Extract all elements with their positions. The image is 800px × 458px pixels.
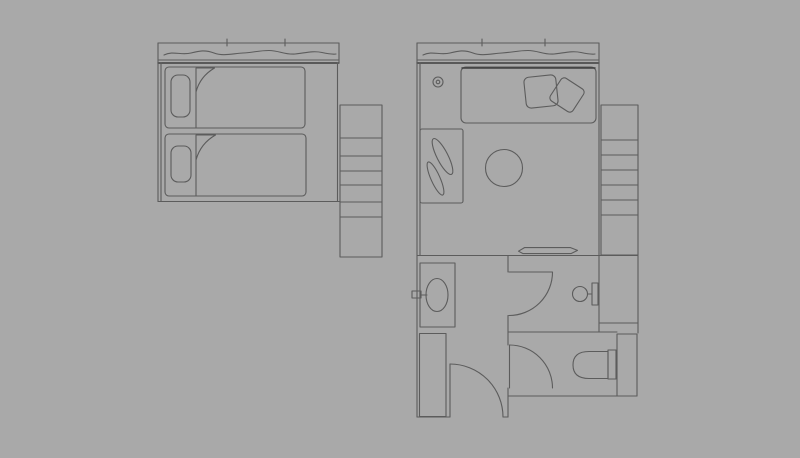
shower-door-arc	[509, 272, 553, 316]
bed-2-pillow	[171, 146, 191, 182]
bed-2-sheet-fold	[196, 135, 216, 160]
wc-door-arc	[510, 345, 553, 388]
floor-plan-canvas	[0, 0, 800, 458]
wall-lamp-inner	[436, 80, 440, 84]
wardrobe	[420, 334, 447, 417]
wall-lamp	[433, 77, 443, 87]
curtain-line	[423, 51, 595, 56]
luggage-tray	[519, 248, 578, 254]
corner-shaft	[617, 334, 637, 396]
bed-2	[165, 134, 306, 196]
bed-1-sheet-fold	[196, 68, 215, 92]
toilet-bowl	[573, 352, 608, 379]
curtain-line	[164, 51, 336, 56]
bed-pillow-2	[548, 76, 585, 113]
toilet-tank	[608, 350, 616, 379]
bed	[461, 67, 596, 123]
plant-leaf-2	[424, 160, 447, 197]
floor-plan-svg	[0, 0, 800, 458]
sink-basin	[426, 279, 448, 312]
entry-door-arc	[450, 364, 503, 417]
washbasin	[573, 287, 588, 302]
washbasin-bracket	[592, 283, 598, 305]
bed-1-pillow	[171, 75, 190, 117]
staircase	[601, 105, 638, 255]
suite-room-plan	[412, 39, 638, 417]
plant-leaf-1	[429, 136, 457, 177]
twin-room-plan	[158, 39, 382, 257]
staircase	[340, 105, 382, 257]
round-table	[486, 150, 523, 187]
